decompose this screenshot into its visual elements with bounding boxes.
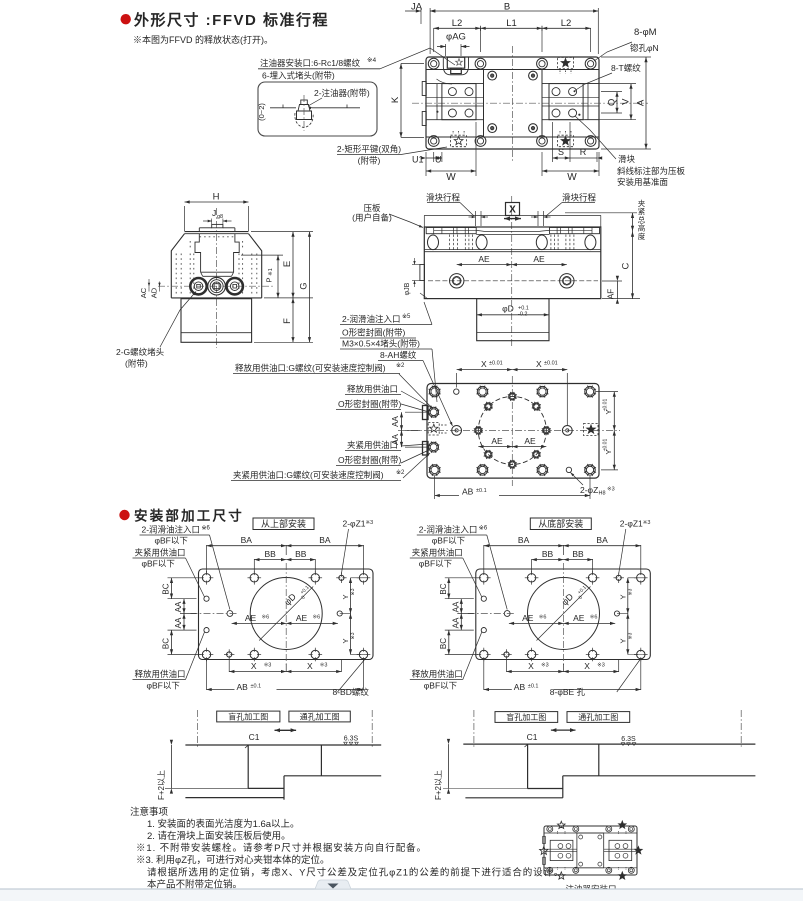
svg-text:※3: ※3 [597,662,605,669]
svg-text:X: X [251,661,257,671]
svg-text:(附带): (附带) [358,156,381,166]
svg-text:※3: ※3 [607,486,615,493]
svg-text:夹紧用供油口: 夹紧用供油口 [412,548,463,558]
svg-text:U1: U1 [412,155,424,165]
svg-text:B: B [504,2,510,13]
svg-text:通孔加工图: 通孔加工图 [300,712,340,722]
svg-text:※3: ※3 [541,662,549,669]
svg-text:H8: H8 [599,491,606,497]
svg-text:释放用供油口: 释放用供油口 [347,384,398,394]
svg-text:滑块: 滑块 [618,154,636,164]
svg-text:BC: BC [162,638,171,649]
svg-text:※6: ※6 [590,614,598,621]
svg-text:※4: ※4 [367,57,376,64]
svg-text:※3: ※3 [350,632,356,639]
svg-text:X: X [509,205,516,216]
svg-text:AA: AA [174,617,183,628]
svg-text:-0.2: -0.2 [518,312,527,318]
svg-text:J: J [212,208,216,218]
svg-text:φBF以下: φBF以下 [147,681,181,691]
svg-text:R: R [580,147,587,157]
svg-text:BA: BA [518,535,530,545]
svg-text:φD: φD [502,304,514,314]
svg-text:BC: BC [439,583,448,594]
svg-text:6-埋入式堵头(附带): 6-埋入式堵头(附带) [262,71,335,81]
svg-text:2-φZ: 2-φZ [580,485,598,495]
svg-text:V: V [621,98,632,105]
svg-text:AE: AE [522,613,534,623]
svg-text:Y: Y [618,594,627,599]
svg-text:φBF以下: φBF以下 [419,559,453,569]
svg-text:外形尺寸 :FFVD 标准行程: 外形尺寸 :FFVD 标准行程 [133,11,329,29]
svg-text:±0.1: ±0.1 [251,684,262,690]
svg-text:(用户自备): (用户自备) [352,213,392,223]
svg-text:±0.01: ±0.01 [603,399,609,412]
svg-text:2-φZ1: 2-φZ1 [620,519,643,529]
svg-text:±0.1: ±0.1 [476,488,487,494]
svg-text:锪孔φN: 锪孔φN [630,43,659,53]
svg-text:6.3S: 6.3S [621,736,636,743]
svg-text:※6: ※6 [313,614,321,621]
svg-text:※1: ※1 [267,268,274,276]
svg-text:O形密封圈(附带): O形密封圈(附带) [342,328,405,338]
svg-text:释放用供油口: 释放用供油口 [135,669,186,679]
svg-text:±0.01: ±0.01 [544,361,558,367]
svg-text:L2: L2 [561,18,572,29]
svg-text:从底部安装: 从底部安装 [538,518,583,529]
svg-text:BA: BA [319,535,331,545]
svg-text:※3: ※3 [627,632,633,639]
svg-text:AE: AE [296,613,308,623]
svg-text:斜线标注部为压板: 斜线标注部为压板 [617,166,686,176]
svg-text:AA: AA [391,416,400,427]
svg-text:Y: Y [618,638,627,643]
svg-text:滑块行程: 滑块行程 [562,193,597,203]
svg-text:X: X [584,661,590,671]
svg-text:※1. 不附带安装螺栓。请参考P尺寸并根据安装方向自行配备。: ※1. 不附带安装螺栓。请参考P尺寸并根据安装方向自行配备。 [136,842,427,854]
svg-text:L2: L2 [452,18,463,29]
svg-text:φBF以下: φBF以下 [432,536,466,546]
svg-text:L1: L1 [506,18,517,29]
svg-text:8-φM: 8-φM [634,27,657,38]
svg-text:Q: Q [607,99,618,106]
svg-text:C1: C1 [527,732,538,742]
svg-text:±0.01: ±0.01 [603,439,609,452]
svg-text:※5: ※5 [402,313,411,320]
svg-text:AB: AB [462,487,474,497]
svg-text:8-φBE 孔: 8-φBE 孔 [550,687,586,697]
svg-text:夹紧用供油口:G螺纹(可安装速度控制阀): 夹紧用供油口:G螺纹(可安装速度控制阀) [233,470,384,480]
svg-text:(0~2): (0~2) [257,103,266,121]
svg-text:BB: BB [542,549,554,559]
svg-text:滑块行程: 滑块行程 [426,193,461,203]
svg-text:H: H [213,192,220,203]
svg-text:φBF以下: φBF以下 [142,559,176,569]
svg-text:AB: AB [514,682,526,692]
svg-text:2-矩形平键(双角): 2-矩形平键(双角) [337,144,401,154]
svg-text:F: F [282,318,293,324]
svg-text:度: 度 [638,231,646,241]
svg-text:W: W [567,172,577,183]
svg-text:2-注油器(附带): 2-注油器(附带) [314,88,370,98]
svg-text:※6: ※6 [262,614,270,621]
svg-text:U: U [435,155,442,165]
svg-text:AE: AE [533,254,545,264]
svg-text:(附带): (附带) [125,359,148,369]
svg-text:8-T螺纹: 8-T螺纹 [611,63,641,73]
svg-text:BA: BA [241,535,253,545]
svg-text:释放用供油口: 释放用供油口 [412,669,463,679]
svg-text:M3×0.5×4堵头(附带): M3×0.5×4堵头(附带) [342,339,420,349]
svg-text:夹紧用供油口: 夹紧用供油口 [347,440,398,450]
svg-text:请根据所选用的定位销，考虑X、Y尺寸公差及定位孔φZ1的公差: 请根据所选用的定位销，考虑X、Y尺寸公差及定位孔φZ1的公差的前提下进行适合的设… [147,867,564,879]
svg-text:Y: Y [341,638,350,643]
svg-text:A: A [636,99,647,106]
svg-text:AD: AD [150,287,159,298]
svg-text:2. 请在滑块上面安装压板后使用。: 2. 请在滑块上面安装压板后使用。 [147,830,291,842]
svg-text:压板: 压板 [363,203,381,213]
svg-text:AA: AA [174,601,183,612]
svg-text:AE: AE [245,613,257,623]
svg-text:注油器安装口:6-Rc1/8螺纹: 注油器安装口:6-Rc1/8螺纹 [260,58,361,68]
svg-text:※3: ※3 [320,662,328,669]
svg-text:BA: BA [596,535,608,545]
svg-text:Y: Y [341,594,350,599]
svg-text:2-润滑油注入口: 2-润滑油注入口 [142,525,201,535]
svg-text:释放用供油口:G螺纹(可安装速度控制阀): 释放用供油口:G螺纹(可安装速度控制阀) [235,363,386,373]
svg-text:F+2以上: F+2以上 [434,770,443,800]
svg-text:盲孔加工图: 盲孔加工图 [506,712,546,722]
svg-text:±0.1: ±0.1 [528,684,539,690]
svg-text:BB: BB [265,549,277,559]
svg-text:注意事项: 注意事项 [130,806,169,818]
svg-text:※3: ※3 [350,588,356,595]
svg-text:E: E [282,261,293,267]
svg-text:BC: BC [162,583,171,594]
svg-text:X: X [528,661,534,671]
svg-text:AF: AF [607,289,616,299]
svg-text:8-BD螺纹: 8-BD螺纹 [333,687,370,697]
svg-text:6.3S: 6.3S [344,736,359,743]
svg-text:※本图为FFVD 的释放状态(打开)。: ※本图为FFVD 的释放状态(打开)。 [133,34,273,45]
svg-text:F+2以上: F+2以上 [157,770,166,800]
svg-text:φBF以下: φBF以下 [155,536,189,546]
svg-text:AC: AC [139,287,148,298]
svg-text:AA: AA [451,617,460,628]
svg-text:※3: ※3 [627,588,633,595]
svg-text:φJB: φJB [404,282,411,295]
svg-text:※3: ※3 [264,662,272,669]
svg-text:从上部安装: 从上部安装 [261,518,306,529]
svg-text:※3: ※3 [643,519,651,526]
svg-text:AA: AA [451,601,460,612]
svg-text:2-润滑油注入口: 2-润滑油注入口 [342,314,401,324]
svg-text:通孔加工图: 通孔加工图 [578,712,618,722]
svg-text:φBF以下: φBF以下 [424,681,458,691]
svg-text:※6: ※6 [479,525,488,532]
svg-text:※2: ※2 [396,362,405,369]
svg-text:盲孔加工图: 盲孔加工图 [228,712,268,722]
svg-text:K: K [390,96,401,103]
svg-text:±0.01: ±0.01 [489,361,503,367]
svg-text:AE: AE [573,613,585,623]
svg-text:安装部加工尺寸: 安装部加工尺寸 [134,508,244,524]
svg-text:O形密封圈(附带): O形密封圈(附带) [338,455,401,465]
svg-text:G: G [299,282,310,289]
svg-text:X: X [481,359,487,369]
svg-text:2-φZ1: 2-φZ1 [343,519,366,529]
svg-text:BB: BB [295,549,307,559]
svg-text:1. 安装面的表面光洁度为1.6a以上。: 1. 安装面的表面光洁度为1.6a以上。 [147,818,300,830]
svg-text:S: S [558,147,564,157]
svg-text:※3: ※3 [366,519,374,526]
svg-text:C: C [621,262,632,269]
svg-text:2-G螺纹堵头: 2-G螺纹堵头 [116,347,165,357]
svg-text:g8: g8 [217,214,223,220]
svg-text:※3. 利用φZ孔，可进行对心夹钳本体的定位。: ※3. 利用φZ孔，可进行对心夹钳本体的定位。 [136,854,330,866]
svg-text:AE: AE [478,254,490,264]
svg-text:O形密封圈(附带): O形密封圈(附带) [338,399,401,409]
svg-text:※6: ※6 [539,614,547,621]
svg-text:φAG: φAG [446,32,466,43]
svg-text:夹紧用供油口: 夹紧用供油口 [135,548,186,558]
svg-text:C1: C1 [249,732,260,742]
svg-text:P: P [265,277,274,282]
svg-text:AB: AB [237,682,249,692]
svg-text:8-AH螺纹: 8-AH螺纹 [380,350,417,360]
svg-text:※6: ※6 [202,525,211,532]
svg-text:BB: BB [572,549,584,559]
svg-text:W: W [446,172,456,183]
svg-text:※2: ※2 [396,469,405,476]
svg-text:2-润滑油注入口: 2-润滑油注入口 [419,525,478,535]
svg-text:AE: AE [491,436,503,446]
svg-text:BC: BC [439,638,448,649]
svg-text:AE: AE [524,436,536,446]
svg-text:X: X [307,661,313,671]
svg-text:X: X [536,359,542,369]
svg-text:安装用基准面: 安装用基准面 [617,177,669,187]
